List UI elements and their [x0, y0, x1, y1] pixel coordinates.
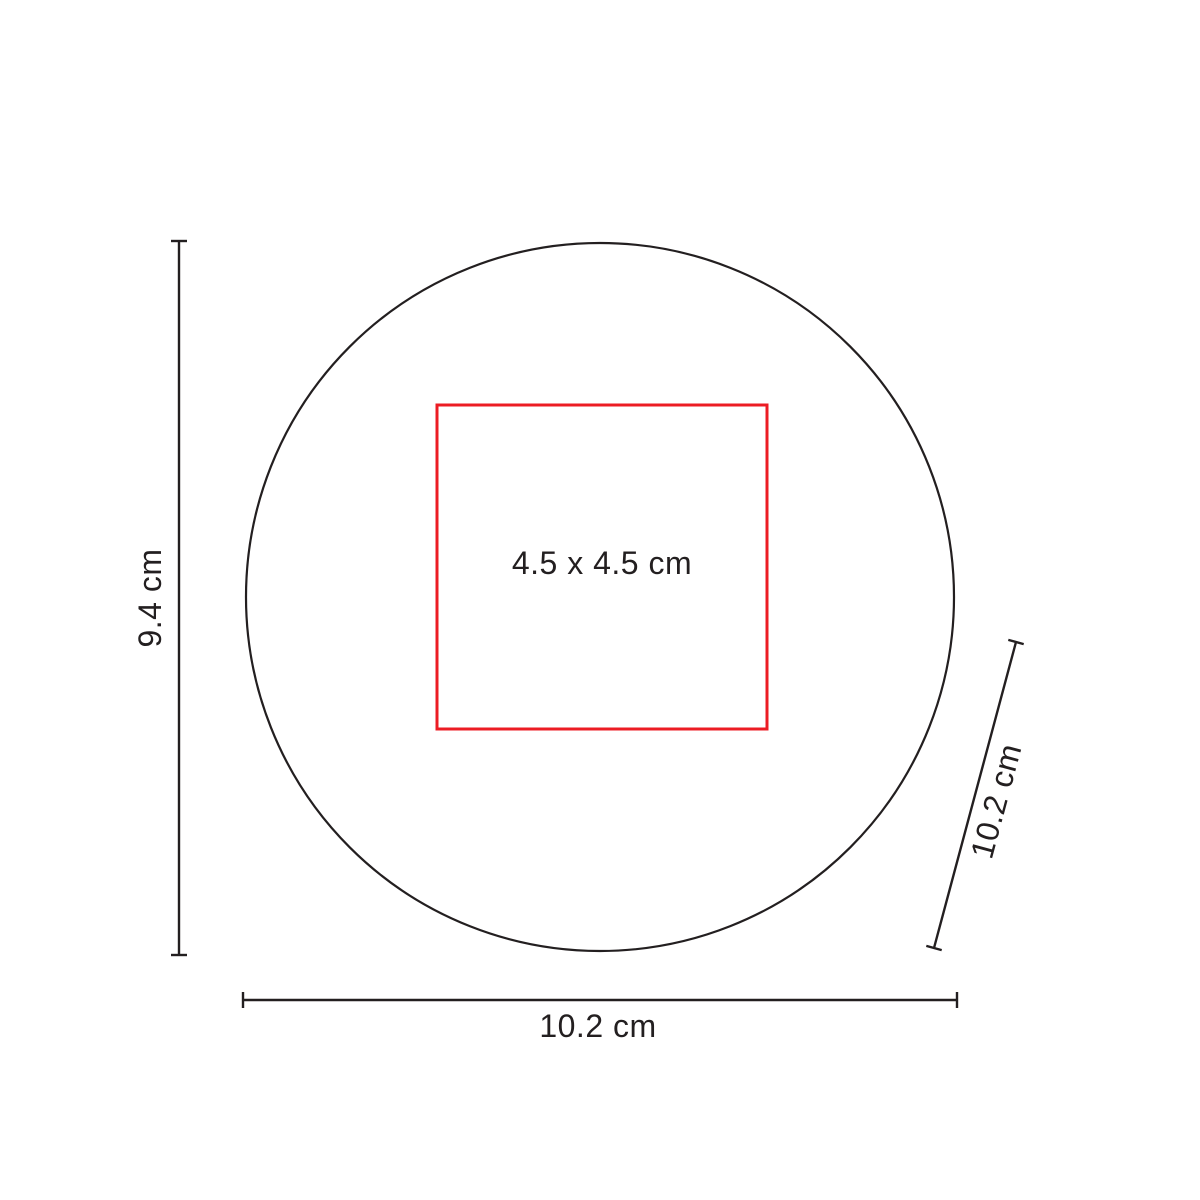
diagram-canvas: 4.5 x 4.5 cm 9.4 cm 10.2 cm 10.2 cm: [0, 0, 1200, 1200]
width-dimension: [243, 992, 957, 1008]
height-dimension-label: 9.4 cm: [132, 548, 168, 647]
dimension-diagram: 4.5 x 4.5 cm 9.4 cm 10.2 cm 10.2 cm: [0, 0, 1200, 1200]
product-circle-outline: [246, 243, 954, 951]
height-dimension: [171, 241, 187, 955]
width-dimension-label: 10.2 cm: [539, 1008, 656, 1044]
imprint-area-label: 4.5 x 4.5 cm: [512, 545, 692, 581]
